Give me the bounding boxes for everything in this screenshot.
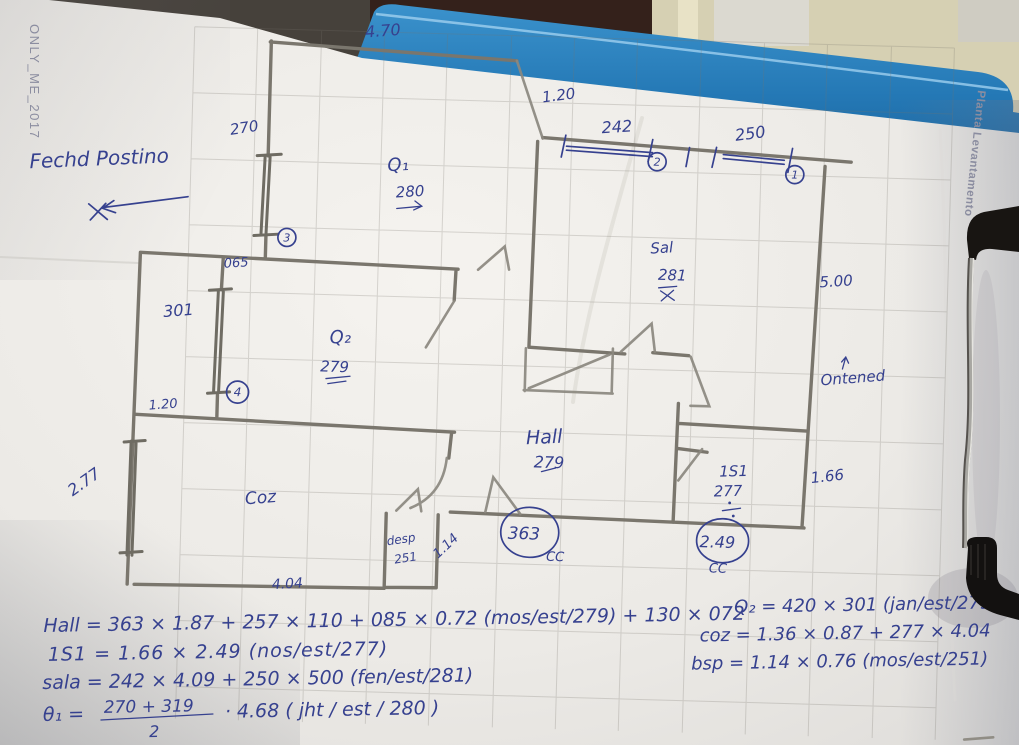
dim-left-window: 301 bbox=[162, 300, 194, 321]
circle-marker-3-digit: 3 bbox=[283, 231, 290, 244]
room-sala-label: Sal bbox=[650, 238, 675, 257]
scene-canvas: ONLY_ME_2017 Planta Levantamento F bbox=[0, 0, 1019, 745]
cc-left-label: CC bbox=[546, 550, 565, 566]
corner-wall-patch bbox=[958, 0, 1019, 42]
formula-theta1-lhs: θ₁ = bbox=[43, 703, 85, 726]
dim-right-width: 1.66 bbox=[810, 466, 845, 488]
dim-corridor: 065 bbox=[223, 255, 249, 271]
circle-marker-1-digit: 1 bbox=[791, 168, 798, 181]
circle-marker-4-digit: 4 bbox=[234, 385, 242, 399]
formula-theta1-numerator: 270 + 319 bbox=[104, 696, 194, 718]
watermark-text: ONLY_ME_2017 bbox=[27, 24, 42, 139]
dim-top-width: 4.70 bbox=[364, 20, 401, 42]
dim-sala-window-left: 242 bbox=[601, 116, 633, 137]
room-hall-height: 279 bbox=[533, 452, 564, 472]
room-1s1-label: 1S1 bbox=[719, 462, 748, 481]
room-sala-height: 281 bbox=[658, 266, 687, 285]
dim-left-opening: 1.20 bbox=[148, 396, 178, 413]
room-q1-height: 280 bbox=[395, 182, 425, 202]
cc-left-value: 363 bbox=[507, 524, 540, 545]
room-hall-label: Hall bbox=[525, 426, 563, 450]
formula-theta1-rhs: · 4.68 ( jht / est / 280 ) bbox=[225, 697, 440, 723]
gray-wall-patch bbox=[714, 0, 809, 46]
photo-of-floorplan-sketch: ONLY_ME_2017 Planta Levantamento F bbox=[0, 0, 1019, 745]
room-q1-label: Q₁ bbox=[387, 154, 410, 176]
formula-theta1-denominator: 2 bbox=[149, 722, 160, 741]
clip-rod-shadow bbox=[972, 270, 1000, 570]
dim-sala-window-right: 250 bbox=[734, 122, 767, 145]
room-q2-label: Q₂ bbox=[329, 326, 352, 348]
cc-right-label: CC bbox=[709, 561, 728, 577]
dim-right-depth: 5.00 bbox=[819, 271, 853, 291]
room-1s1-height: 277 bbox=[713, 482, 743, 501]
circle-marker-2-digit: 2 bbox=[653, 156, 660, 169]
cc-right-value: 2.49 bbox=[699, 532, 735, 552]
room-coz-label: Coz bbox=[244, 487, 278, 509]
room-q2-height: 279 bbox=[320, 357, 349, 376]
dim-coz-width: 4.04 bbox=[271, 575, 303, 593]
